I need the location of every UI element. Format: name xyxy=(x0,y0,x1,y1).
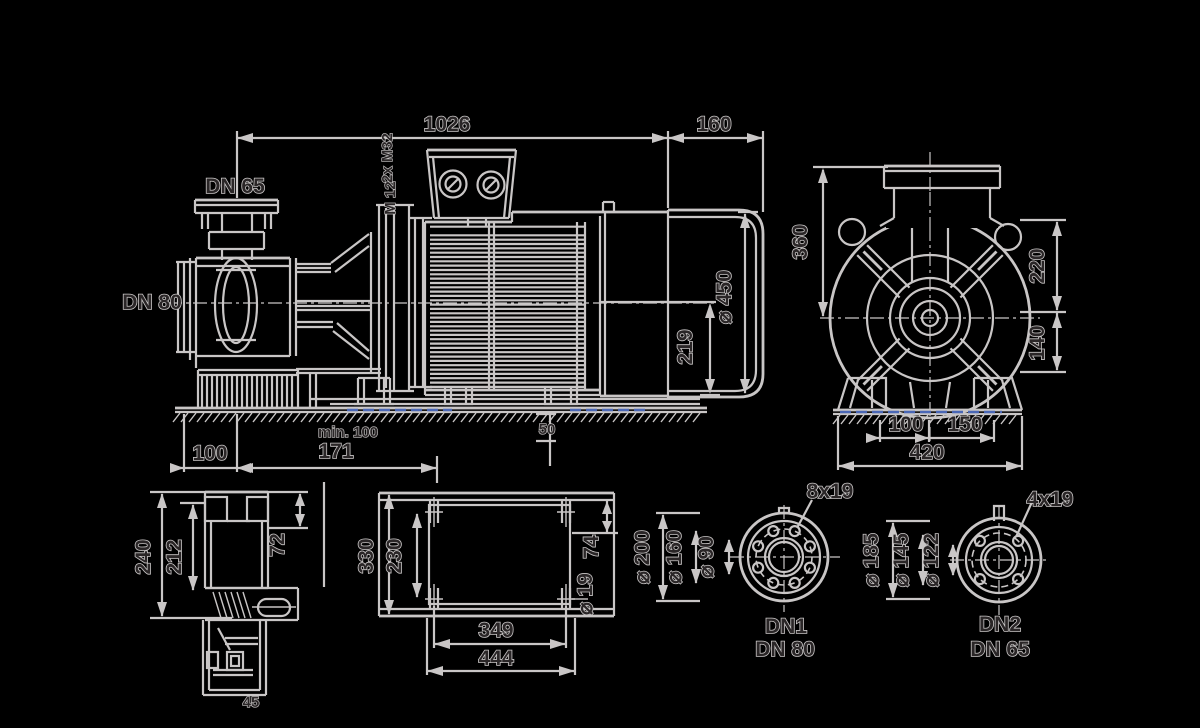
svg-text:DN 65: DN 65 xyxy=(205,175,265,198)
svg-text:DN 80: DN 80 xyxy=(122,291,182,314)
svg-text:72: 72 xyxy=(266,533,289,556)
svg-text:⌀ 145: ⌀ 145 xyxy=(890,533,913,587)
svg-text:220: 220 xyxy=(1026,248,1049,283)
svg-text:140: 140 xyxy=(1026,325,1049,360)
svg-text:100: 100 xyxy=(192,442,227,465)
svg-text:⌀ 450: ⌀ 450 xyxy=(713,270,736,324)
svg-text:171: 171 xyxy=(318,440,353,463)
svg-text:⌀ 19: ⌀ 19 xyxy=(574,573,597,615)
svg-text:1026: 1026 xyxy=(424,113,471,136)
svg-text:DN 80: DN 80 xyxy=(755,638,815,661)
svg-text:DN2: DN2 xyxy=(979,613,1021,636)
svg-text:DN 65: DN 65 xyxy=(970,638,1030,661)
svg-text:4x19: 4x19 xyxy=(1027,488,1074,511)
svg-text:⌀ 160: ⌀ 160 xyxy=(663,530,686,584)
svg-text:⌀ 90: ⌀ 90 xyxy=(695,536,718,578)
svg-text:444: 444 xyxy=(478,647,513,670)
svg-text:50: 50 xyxy=(539,421,556,438)
svg-text:230: 230 xyxy=(383,538,406,573)
svg-text:100: 100 xyxy=(888,413,923,436)
svg-text:45: 45 xyxy=(243,694,260,711)
svg-text:360: 360 xyxy=(789,224,812,259)
svg-text:212: 212 xyxy=(163,539,186,574)
svg-text:⌀ 122: ⌀ 122 xyxy=(920,533,943,587)
svg-text:150: 150 xyxy=(947,413,982,436)
svg-text:240: 240 xyxy=(132,539,155,574)
svg-text:330: 330 xyxy=(355,538,378,573)
svg-text:min. 100: min. 100 xyxy=(318,424,378,441)
svg-text:2x M32: 2x M32 xyxy=(379,133,396,183)
svg-text:⌀ 185: ⌀ 185 xyxy=(860,533,883,587)
svg-text:74: 74 xyxy=(580,535,603,559)
svg-text:DN1: DN1 xyxy=(765,615,807,638)
svg-text:8x19: 8x19 xyxy=(807,480,854,503)
svg-text:160: 160 xyxy=(696,113,731,136)
svg-text:420: 420 xyxy=(909,441,944,464)
svg-text:⌀ 200: ⌀ 200 xyxy=(631,530,654,584)
svg-text:M 12: M 12 xyxy=(382,181,399,214)
svg-text:349: 349 xyxy=(478,619,513,642)
svg-text:219: 219 xyxy=(674,329,697,364)
